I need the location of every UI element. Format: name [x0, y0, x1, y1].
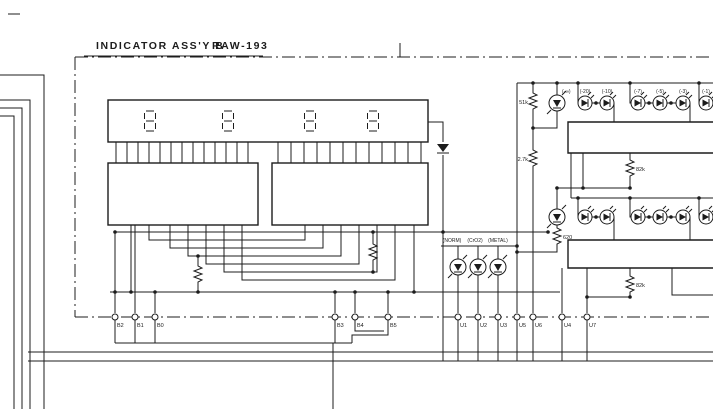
bottom-bus-lines	[28, 352, 713, 361]
connector-label-b1: B1	[137, 323, 144, 329]
meter-label-10: (-10)	[602, 89, 613, 95]
boundary-dashdot-line	[75, 57, 713, 317]
left-edge-wires	[0, 75, 713, 409]
connector-label-u3: U3	[500, 323, 507, 329]
connector-label-u7: U7	[589, 323, 596, 329]
display-assembly	[108, 100, 428, 163]
display-pins-left	[116, 142, 248, 163]
maze-resistor-2	[369, 232, 377, 272]
tape-label-norm: (NORM)	[443, 238, 462, 244]
seven-segment-digit	[368, 111, 379, 131]
assembly-part-number: RAW-193	[212, 40, 269, 52]
connector-label-b2: B2	[117, 323, 124, 329]
led-icon	[653, 206, 669, 224]
meter-label-3: (-3)	[679, 89, 687, 95]
led-icon	[631, 206, 647, 224]
resistor-82k-2	[626, 268, 634, 297]
resistor-label-82k-1: 82k	[636, 167, 645, 173]
schematic-canvas: INDICATOR ASS'Y B RAW-193	[0, 0, 713, 409]
meter-label-7: (-7)	[634, 89, 642, 95]
driver-ic-right	[272, 163, 428, 225]
seven-segment-digit	[305, 111, 316, 131]
display-outline	[108, 100, 428, 142]
tape-label-metal: (METAL)	[488, 238, 508, 244]
led-icon	[699, 206, 713, 224]
tape-type-leds: (NORM) (CrO2) (METAL)	[441, 238, 517, 313]
meter-label-inf: (-∞)	[562, 89, 571, 95]
connector-label-b4: B4	[357, 323, 364, 329]
b-connector-drops	[115, 319, 388, 409]
meter-ic-1	[568, 122, 713, 153]
edge-connectors: B2 B1 B0 B3 B4 B5 U1 U2 U3 U5 U6 U4 U7	[112, 314, 596, 329]
connector-label-u4: U4	[564, 323, 571, 329]
driver-ic-left	[108, 163, 258, 225]
connector-label-u1: U1	[460, 323, 467, 329]
below-boundary-wires	[115, 319, 587, 409]
schematic-page: INDICATOR ASS'Y B RAW-193	[0, 0, 713, 409]
meter-label-5: (-5)	[656, 89, 664, 95]
meter-label-20: (-20)	[580, 89, 591, 95]
led-icon	[578, 206, 594, 224]
meter-mid-wires	[557, 153, 713, 209]
seven-segment-digit	[223, 111, 234, 131]
resistor-620	[517, 225, 561, 252]
connector-label-b5: B5	[390, 323, 397, 329]
resistor-label-620: 620	[563, 235, 572, 241]
level-meter-section: (-∞) (-20) (-10) (-7) (-5) (-3) (-1) 51k…	[517, 83, 713, 313]
junction-dots	[113, 81, 701, 299]
driver-ics	[108, 163, 428, 225]
nested-wires	[0, 75, 44, 409]
meter-label-1: (-1)	[702, 89, 710, 95]
assembly-title: INDICATOR ASS'Y B	[96, 40, 225, 52]
connector-label-u6: U6	[535, 323, 542, 329]
connector-label-b3: B3	[337, 323, 344, 329]
resistor-chain-51k-2k7	[529, 83, 537, 313]
display-pins-right	[278, 142, 421, 163]
meter-ic-2	[568, 240, 713, 268]
tape-label-cro2: (CrO2)	[467, 238, 483, 244]
connector-label-b0: B0	[157, 323, 164, 329]
maze-resistor-1	[194, 256, 202, 292]
seven-segment-digit	[145, 111, 156, 131]
resistor-82k-1	[626, 153, 634, 188]
resistor-label-82k-2: 82k	[636, 283, 645, 289]
meter-bottom-wires	[562, 268, 713, 313]
resistor-label-2k7: 2.7k	[518, 157, 529, 163]
diode-triangle-icon	[437, 144, 449, 152]
connector-label-u2: U2	[480, 323, 487, 329]
connector-label-u5: U5	[519, 323, 526, 329]
resistor-label-51k: 51k	[519, 100, 528, 106]
diode-wire	[428, 122, 443, 361]
